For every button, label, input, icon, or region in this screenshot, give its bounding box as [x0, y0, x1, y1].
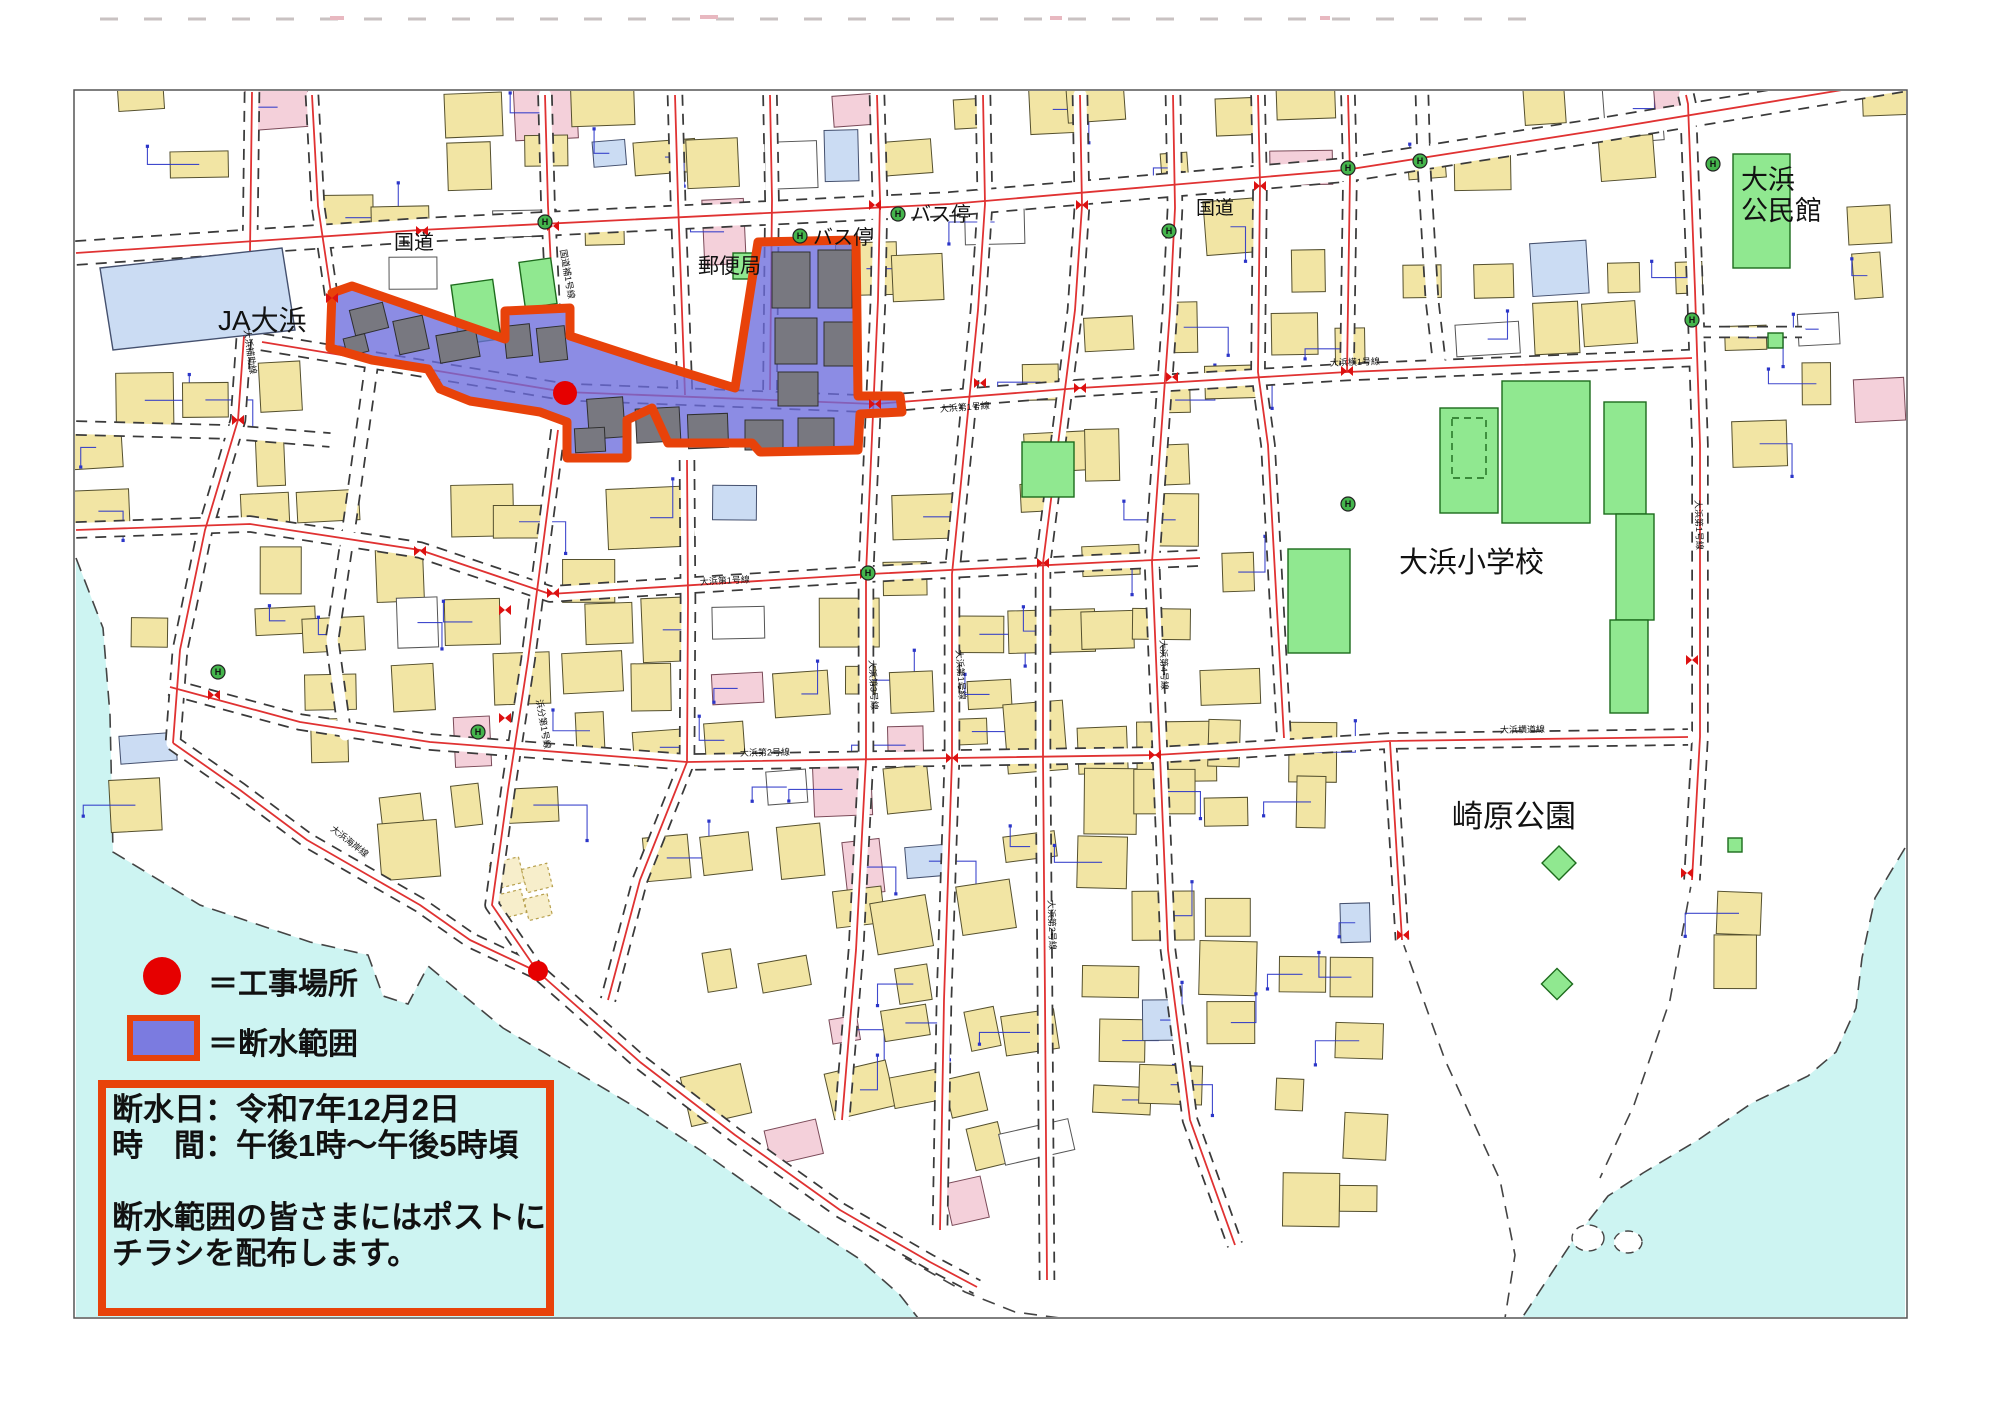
svg-text:H: H: [475, 727, 482, 737]
public-green-building: [1502, 381, 1590, 523]
svg-text:H: H: [215, 667, 222, 677]
public-green-building: [1616, 514, 1654, 620]
svg-text:H: H: [1345, 163, 1352, 173]
public-green-building: [1610, 620, 1648, 713]
svg-text:H: H: [1166, 226, 1173, 236]
label-bus-stop-1: バス停: [813, 228, 873, 249]
label-elementary-school: 大浜小学校: [1399, 548, 1544, 578]
construction-dot-2: [528, 961, 548, 981]
outage-date-line: 断水日：令和7年12月2日: [112, 1092, 546, 1128]
svg-text:H: H: [1710, 159, 1717, 169]
svg-text:H: H: [895, 209, 902, 219]
legend-outage-swatch-icon: [127, 1015, 200, 1061]
label-kokudo-east: 国道: [1196, 199, 1234, 219]
legend-outage-label: ＝断水範囲: [208, 1019, 358, 1063]
svg-text:H: H: [797, 231, 804, 241]
blank-line: [112, 1164, 546, 1200]
label-bus-stop-2: バス停: [911, 205, 971, 226]
public-green-building: [1728, 838, 1742, 852]
legend-construction-label: ＝工事場所: [208, 959, 358, 1003]
construction-dot-1: [553, 381, 577, 405]
label-post-office: 郵便局: [698, 256, 761, 278]
svg-text:大浜第4号線: 大浜第4号線: [1158, 640, 1171, 690]
public-green-building: [519, 258, 557, 308]
outage-time-line: 時 間：午後1時～午後5時頃: [112, 1128, 546, 1164]
public-green-building: [1440, 408, 1498, 513]
cropped-map-strip: [100, 15, 1530, 20]
outage-info-box: 断水日：令和7年12月2日 時 間：午後1時～午後5時頃 断水範囲の皆さまにはポ…: [98, 1080, 554, 1316]
island: [1572, 1225, 1604, 1251]
svg-text:大浜横1号線: 大浜横1号線: [1330, 355, 1380, 368]
label-kominkan-1: 大浜: [1741, 166, 1795, 194]
svg-text:H: H: [1345, 499, 1352, 509]
notice-line-2: チラシを配布します。: [112, 1236, 546, 1272]
island: [1614, 1231, 1642, 1253]
water-outage-notice-map: 大浜第1号線大浜第2号線大浜第1号線大浜横1号線大浜横道線大浜第1号線大浜第2号…: [0, 0, 2000, 1414]
svg-text:H: H: [865, 568, 872, 578]
svg-text:H: H: [1689, 315, 1696, 325]
svg-text:大浜第2号線: 大浜第2号線: [740, 746, 790, 758]
public-green-building: [1288, 549, 1350, 653]
label-kokudo-west: 国道: [394, 233, 434, 254]
legend-construction-dot-icon: [143, 957, 181, 995]
svg-text:H: H: [1417, 156, 1424, 166]
notice-line-1: 断水範囲の皆さまにはポストに: [112, 1200, 546, 1236]
svg-text:大浜第2号線: 大浜第2号線: [1046, 900, 1059, 950]
svg-text:H: H: [542, 217, 549, 227]
label-sakihara-park: 崎原公園: [1452, 801, 1576, 834]
label-kominkan-2: 公民館: [1741, 197, 1822, 225]
label-ja-ohama: JA大浜: [218, 306, 307, 335]
public-green-building: [1768, 333, 1783, 348]
public-green-building: [1022, 442, 1074, 497]
svg-text:大浜第1号線: 大浜第1号線: [1693, 500, 1706, 550]
public-green-building: [1604, 402, 1646, 514]
svg-text:大浜横道線: 大浜横道線: [1500, 723, 1545, 735]
